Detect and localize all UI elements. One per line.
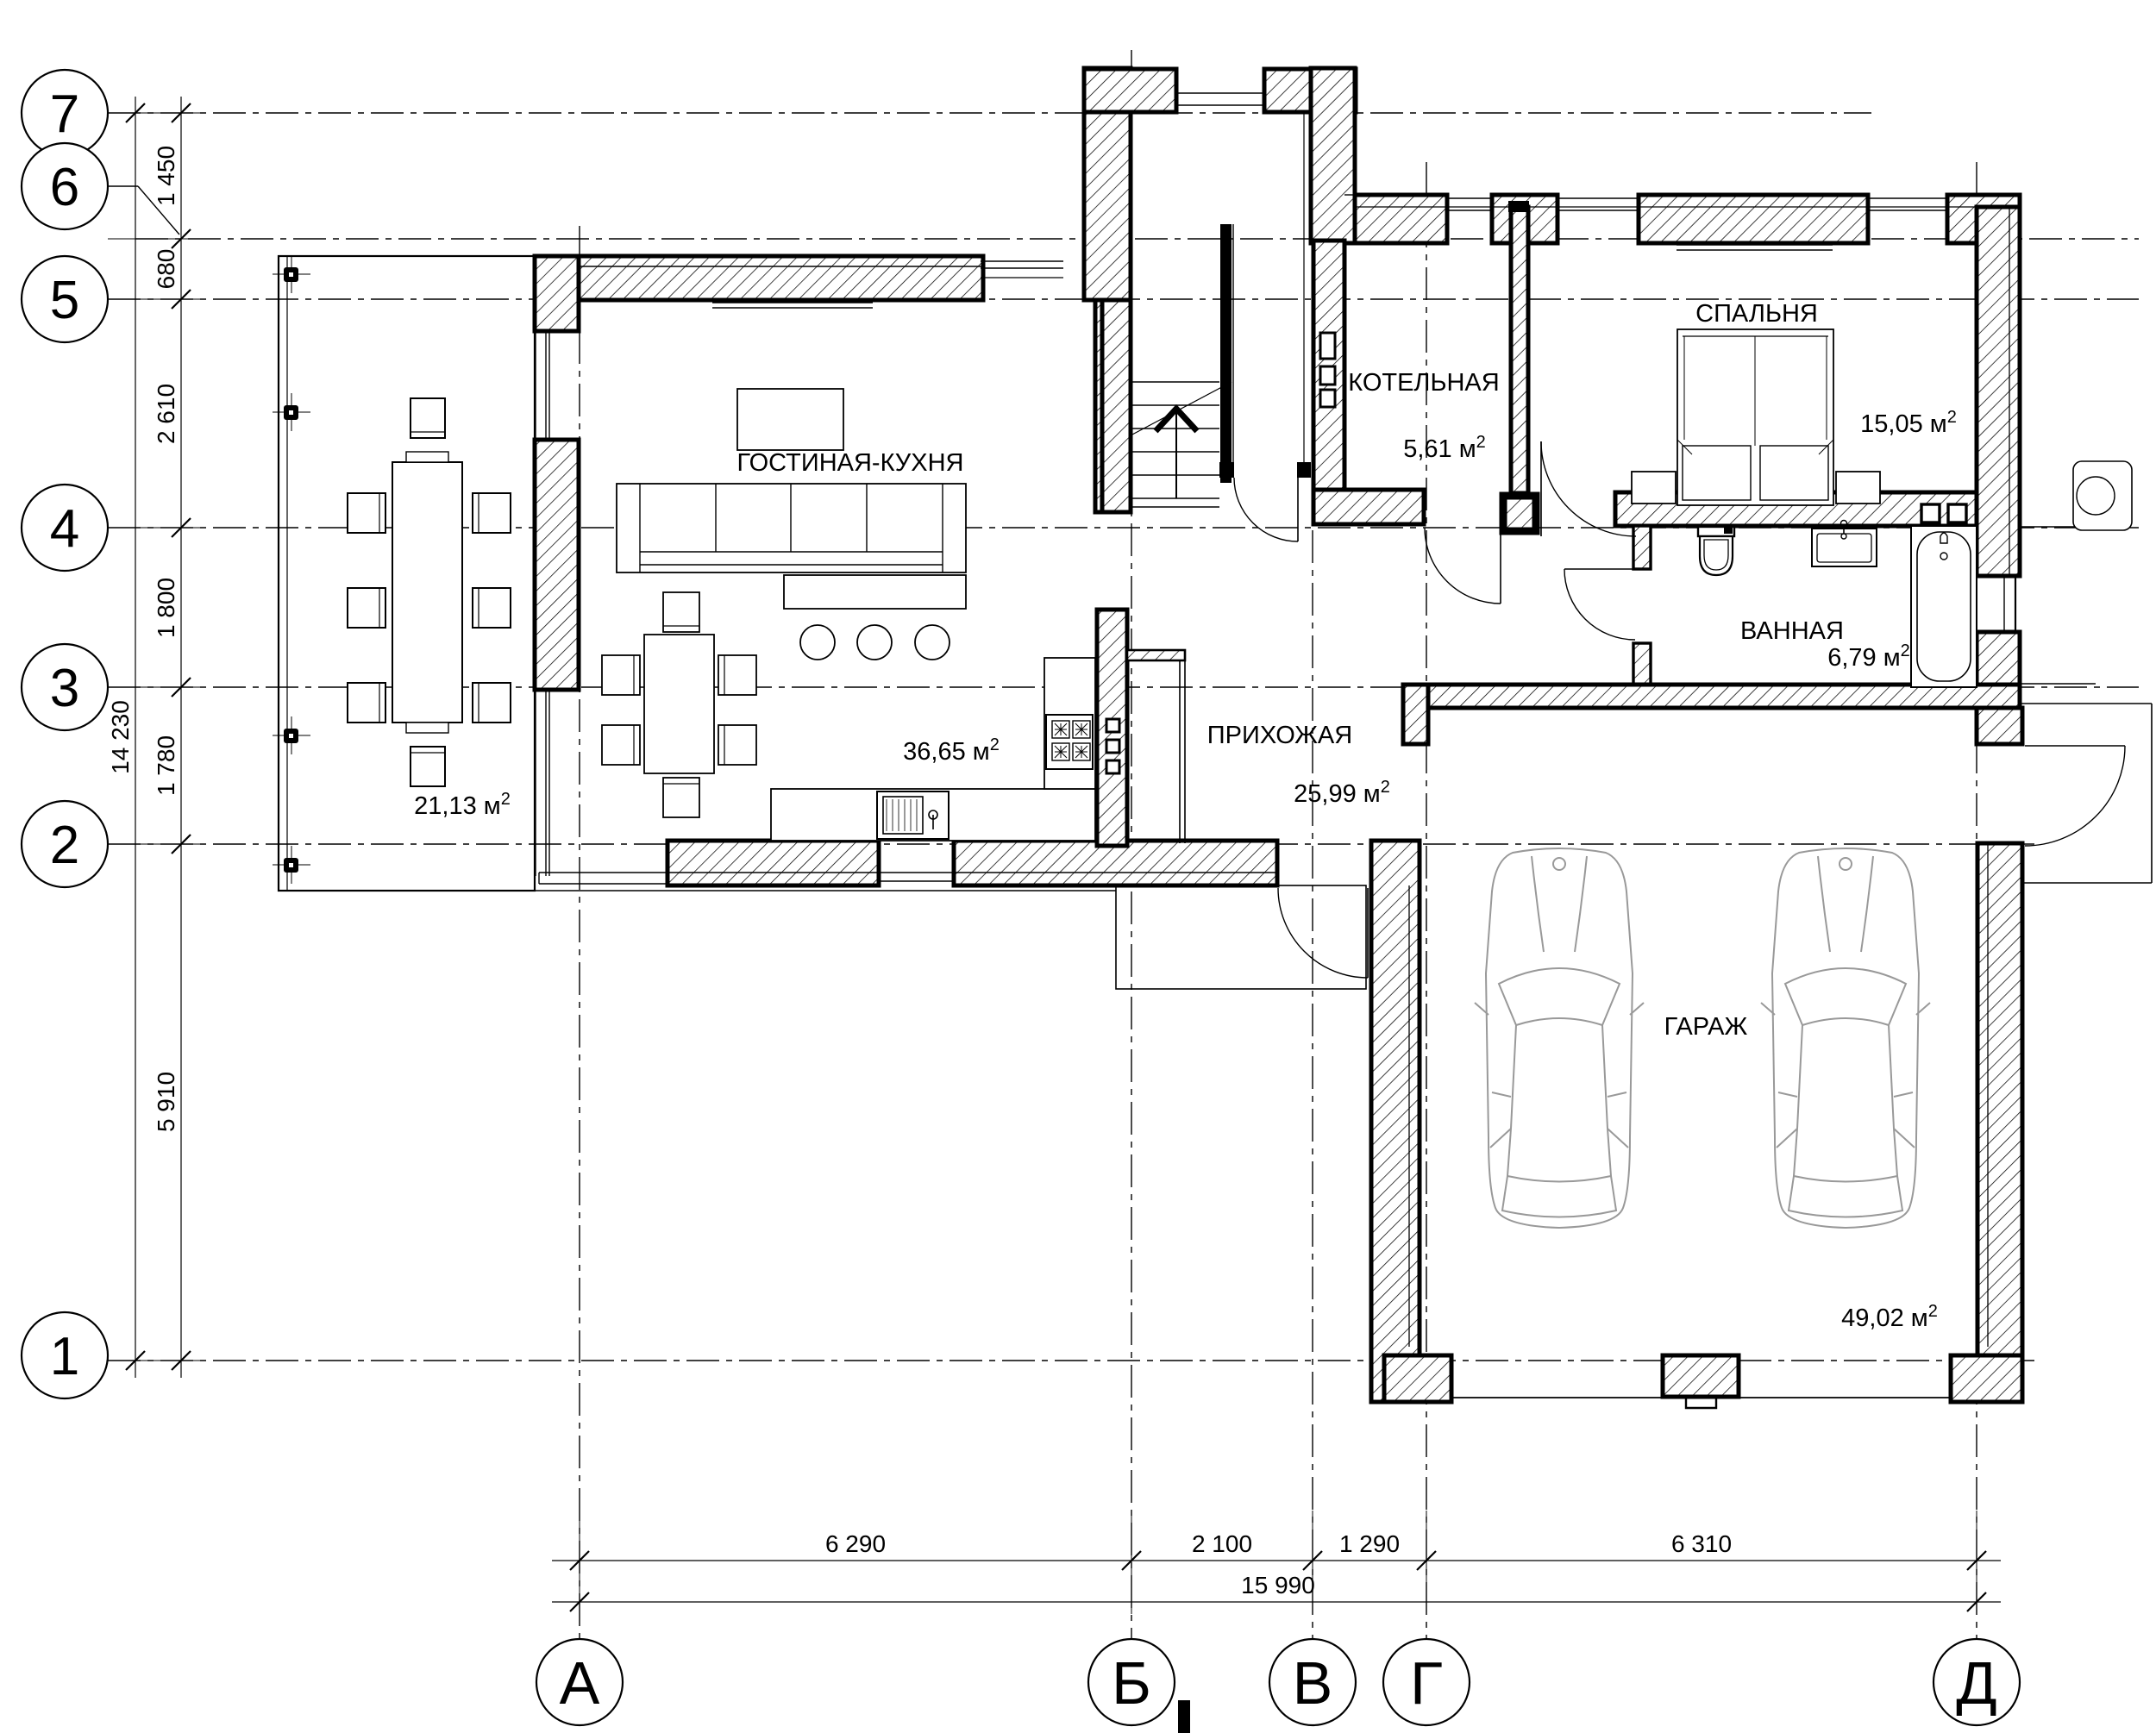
svg-text:1 800: 1 800: [153, 578, 179, 638]
svg-text:6 290: 6 290: [825, 1530, 886, 1557]
svg-text:ГАРАЖ: ГАРАЖ: [1664, 1013, 1748, 1041]
svg-text:Г: Г: [1410, 1649, 1443, 1717]
svg-text:3: 3: [50, 659, 79, 718]
svg-text:25,99 м2: 25,99 м2: [1294, 778, 1390, 808]
svg-text:СПАЛЬНЯ: СПАЛЬНЯ: [1695, 300, 1818, 328]
svg-text:6 310: 6 310: [1671, 1530, 1732, 1557]
svg-text:ПРИХОЖАЯ: ПРИХОЖАЯ: [1207, 722, 1352, 749]
svg-text:1 290: 1 290: [1339, 1530, 1400, 1557]
svg-text:7: 7: [50, 84, 79, 144]
svg-text:36,65 м2: 36,65 м2: [903, 735, 1000, 766]
svg-text:Б: Б: [1112, 1649, 1151, 1717]
svg-text:2 100: 2 100: [1192, 1530, 1252, 1557]
svg-text:21,13 м2: 21,13 м2: [414, 790, 511, 820]
svg-text:49,02 м2: 49,02 м2: [1841, 1302, 1938, 1332]
svg-text:1: 1: [50, 1327, 79, 1386]
svg-text:КОТЕЛЬНАЯ: КОТЕЛЬНАЯ: [1348, 369, 1499, 397]
svg-text:4: 4: [50, 499, 79, 559]
svg-text:1 450: 1 450: [153, 146, 179, 206]
svg-text:А: А: [560, 1649, 600, 1717]
svg-text:Д: Д: [1956, 1649, 1996, 1717]
svg-text:2: 2: [50, 816, 79, 875]
svg-text:6: 6: [50, 158, 79, 217]
svg-text:5: 5: [50, 271, 79, 330]
svg-text:1 780: 1 780: [153, 735, 179, 796]
svg-text:ГОСТИНАЯ-КУХНЯ: ГОСТИНАЯ-КУХНЯ: [737, 449, 964, 477]
svg-text:680: 680: [153, 249, 179, 290]
svg-text:2 610: 2 610: [153, 384, 179, 444]
svg-text:В: В: [1293, 1649, 1333, 1717]
svg-text:6,79 м2: 6,79 м2: [1827, 641, 1910, 672]
svg-text:15,05 м2: 15,05 м2: [1860, 408, 1957, 438]
svg-text:14 230: 14 230: [107, 700, 134, 774]
svg-text:5 910: 5 910: [153, 1072, 179, 1132]
svg-text:5,61 м2: 5,61 м2: [1403, 433, 1486, 463]
svg-text:ВАННАЯ: ВАННАЯ: [1740, 617, 1844, 645]
svg-text:15 990: 15 990: [1241, 1572, 1315, 1598]
